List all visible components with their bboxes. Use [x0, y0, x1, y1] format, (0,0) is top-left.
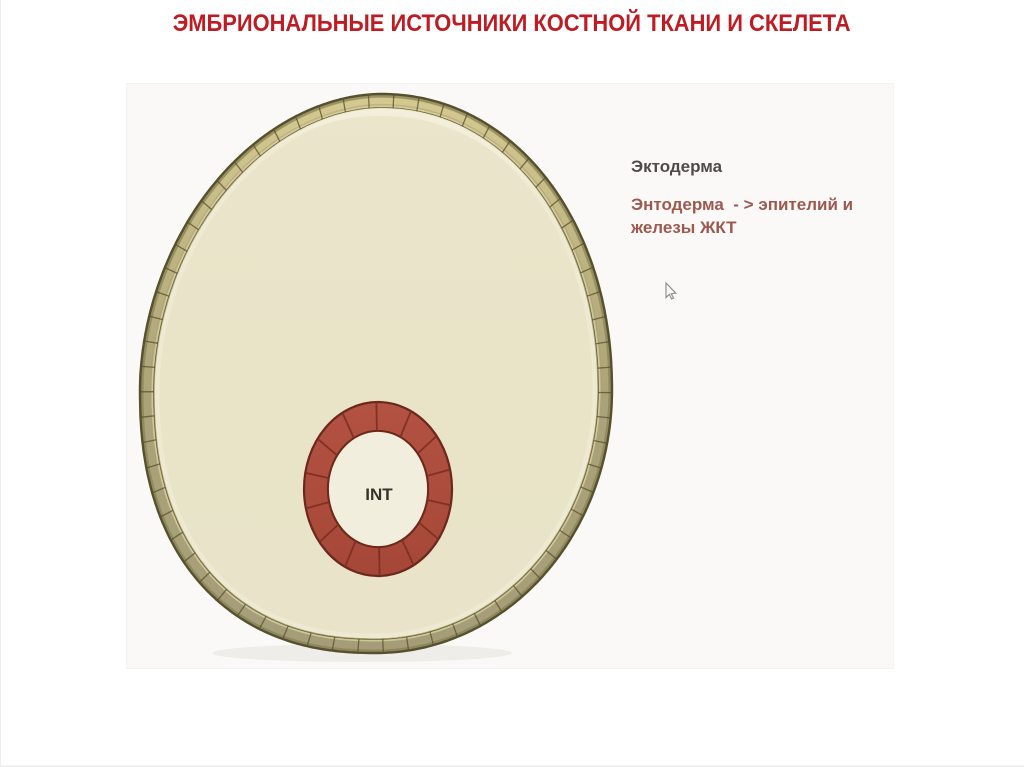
- svg-text:INT: INT: [365, 485, 393, 504]
